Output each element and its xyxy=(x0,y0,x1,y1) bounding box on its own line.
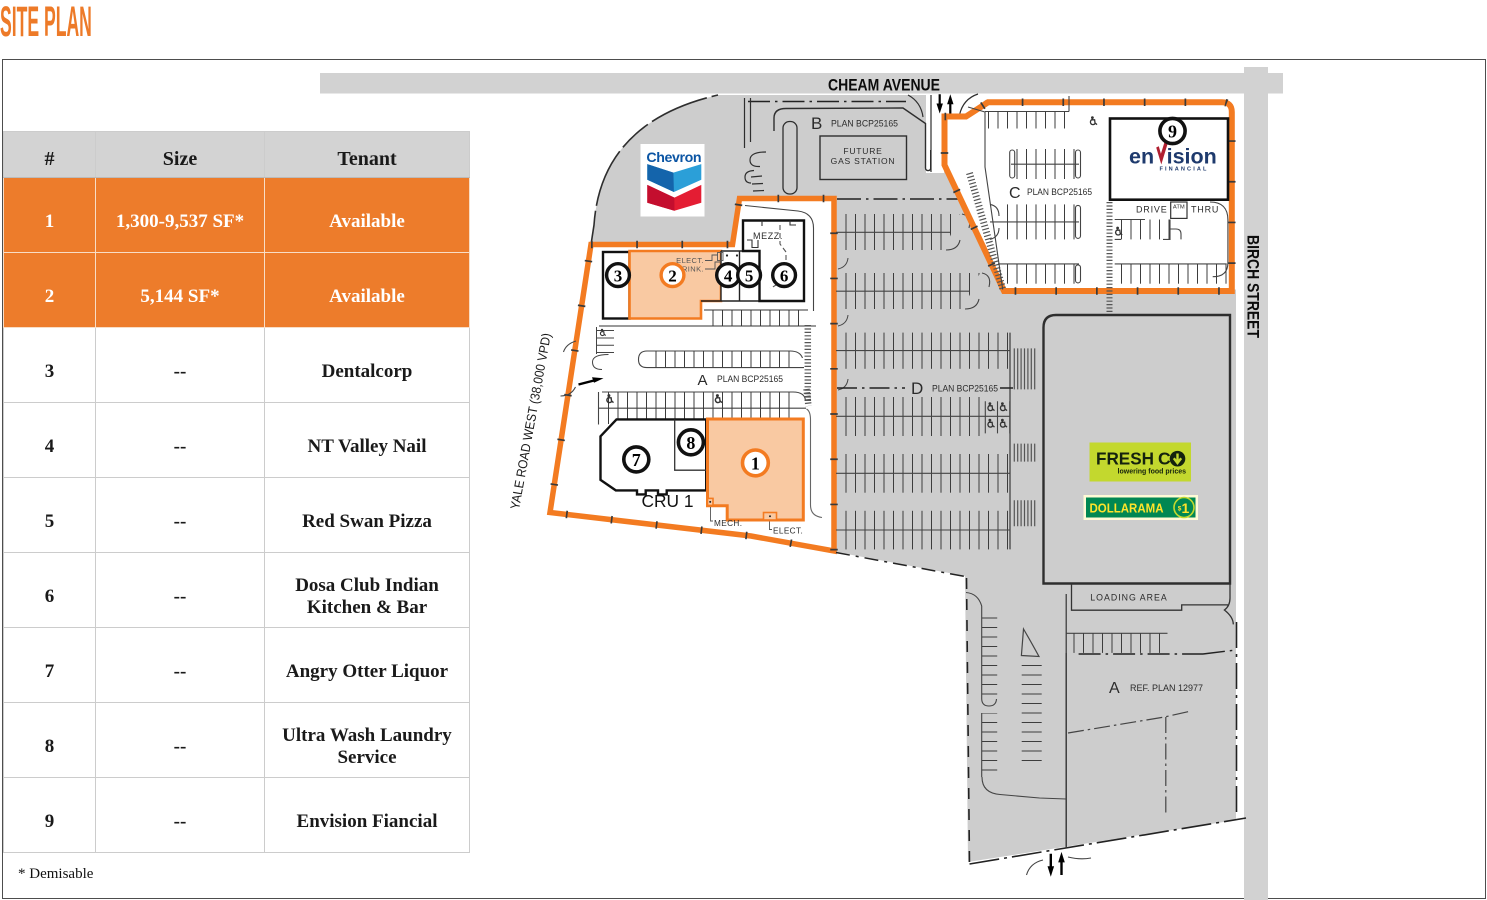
svg-text:PLAN BCP25165: PLAN BCP25165 xyxy=(1027,187,1092,197)
svg-text:ATM: ATM xyxy=(1173,205,1185,211)
svg-text:6: 6 xyxy=(780,266,789,285)
svg-text:5: 5 xyxy=(745,266,754,285)
svg-text:PLAN BCP25165: PLAN BCP25165 xyxy=(831,119,898,129)
svg-text:C: C xyxy=(1009,185,1021,202)
svg-text:THRU: THRU xyxy=(1191,205,1219,215)
svg-text:FUTURE: FUTURE xyxy=(843,146,882,156)
svg-text:A: A xyxy=(698,372,708,389)
svg-text:BIRCH STREET: BIRCH STREET xyxy=(1244,235,1262,338)
svg-text:9: 9 xyxy=(1168,122,1177,142)
svg-text:D: D xyxy=(911,379,923,398)
svg-text:2: 2 xyxy=(668,266,677,285)
svg-text:DRIVE: DRIVE xyxy=(1136,205,1168,215)
svg-text:1: 1 xyxy=(751,454,760,474)
svg-text:DOLLARAMA: DOLLARAMA xyxy=(1090,502,1164,516)
svg-text:LOADING AREA: LOADING AREA xyxy=(1090,593,1168,603)
svg-text:lowering food prices: lowering food prices xyxy=(1118,469,1187,476)
svg-text:FRESH: FRESH xyxy=(1096,449,1154,469)
svg-text:A: A xyxy=(1109,680,1120,697)
svg-text:PLAN BCP25165: PLAN BCP25165 xyxy=(717,374,783,384)
svg-text:1: 1 xyxy=(1182,500,1190,516)
svg-text:REF. PLAN 12977: REF. PLAN 12977 xyxy=(1130,683,1203,693)
svg-text:C: C xyxy=(1158,449,1171,469)
svg-text:ELECT.: ELECT. xyxy=(773,527,803,536)
svg-text:4: 4 xyxy=(724,266,733,285)
svg-text:Chevron: Chevron xyxy=(646,150,701,166)
svg-text:MECH.: MECH. xyxy=(714,519,742,528)
svg-text:YALE ROAD WEST (38,000 VPD): YALE ROAD WEST (38,000 VPD) xyxy=(507,332,554,511)
svg-text:3: 3 xyxy=(614,266,623,285)
svg-text:8: 8 xyxy=(686,433,695,453)
svg-text:PLAN BCP25165: PLAN BCP25165 xyxy=(932,384,998,394)
svg-text:CRU 1: CRU 1 xyxy=(642,491,694,511)
svg-text:CHEAM AVENUE: CHEAM AVENUE xyxy=(828,76,940,94)
svg-text:GAS STATION: GAS STATION xyxy=(831,156,896,166)
svg-text:B: B xyxy=(811,114,822,133)
svg-text:FINANCIAL: FINANCIAL xyxy=(1159,167,1208,173)
svg-text:7: 7 xyxy=(632,450,641,470)
svg-text:MEZZ.: MEZZ. xyxy=(753,231,783,241)
svg-text:enision: enision xyxy=(1129,145,1217,169)
